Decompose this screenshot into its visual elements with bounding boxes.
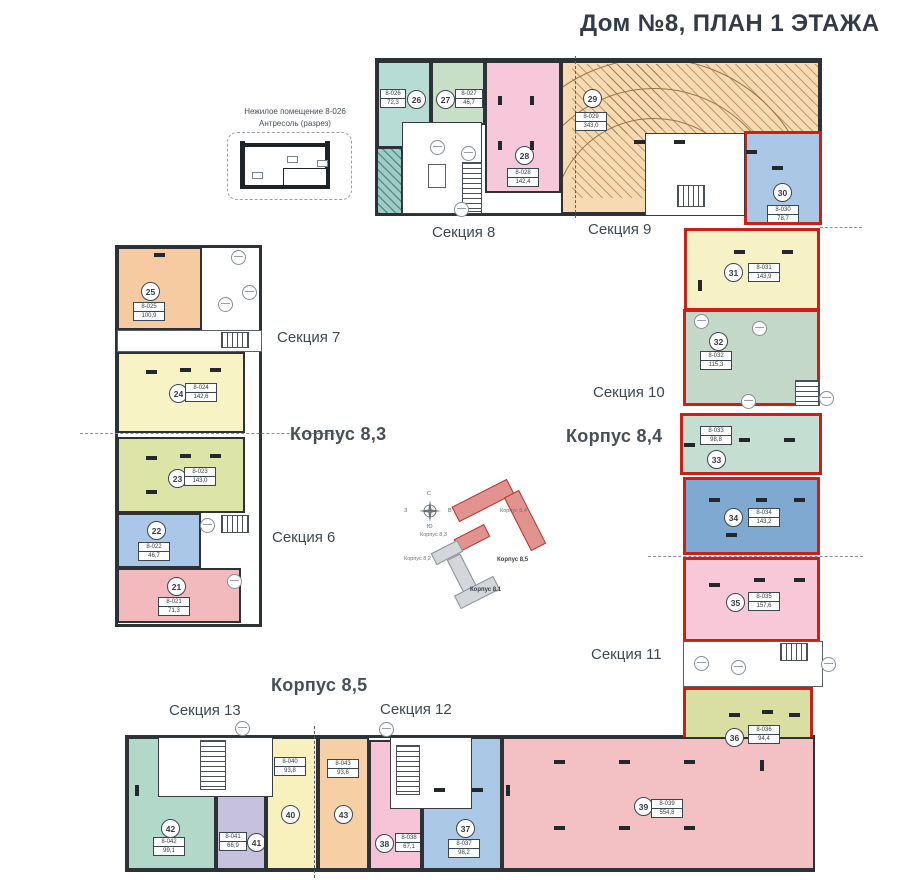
unit-36-area: 94,4 (749, 735, 779, 743)
unit-26-hatched-area (377, 148, 402, 214)
room-tag-icon (694, 314, 709, 329)
mezzanine-note-line2: Антресоль (разрез) (259, 119, 331, 128)
unit-43-code: 8-043 (328, 760, 358, 769)
room-tag-icon (379, 722, 394, 737)
unit-24-info: 8-024 142,6 (185, 383, 217, 402)
unit-27-info: 8-027 46,7 (455, 89, 483, 108)
column-mark (554, 826, 565, 830)
unit-29-info: 8-029 343,0 (575, 112, 607, 131)
unit-30-number: 30 (773, 183, 792, 202)
unit-21-number: 21 (167, 577, 186, 596)
unit-40-area: 93,8 (275, 767, 305, 775)
column-mark (180, 454, 191, 458)
unit-42-info: 8-042 99,1 (153, 837, 185, 856)
section-divider-line (575, 56, 576, 218)
column-mark (709, 583, 720, 587)
column-mark (135, 785, 139, 796)
column-mark (734, 250, 745, 254)
unit-37-area: 98,2 (449, 849, 479, 857)
unit-39-info: 8-039 554,8 (651, 799, 683, 818)
section-8-label: Секция 8 (432, 224, 495, 241)
unit-32-number: 32 (709, 332, 728, 351)
unit-22-code: 8-022 (139, 543, 169, 552)
compass-rose-icon (419, 500, 441, 522)
korpus-84-label: Корпус 8,4 (566, 426, 662, 447)
dimension-tag (317, 160, 328, 167)
unit-32-area: 115,3 (701, 361, 731, 369)
unit-29-code: 8-029 (576, 113, 606, 122)
unit-39-area: 554,8 (652, 809, 682, 817)
column-mark (782, 250, 793, 254)
room-tag-icon (227, 574, 242, 589)
column-mark (789, 713, 800, 717)
unit-38-area: 67,1 (396, 843, 422, 851)
unit-42-number: 42 (161, 819, 180, 838)
unit-26-code: 8-026 (381, 90, 405, 99)
unit-35-info: 8-035 157,6 (748, 592, 780, 611)
unit-40-number: 40 (281, 805, 300, 824)
column-mark (530, 141, 534, 150)
column-mark (498, 141, 502, 150)
mezzanine-column-left (240, 141, 245, 189)
column-mark (210, 368, 221, 372)
mezzanine-beam-bottom (245, 185, 325, 189)
room-tag-icon (461, 146, 476, 161)
column-mark (472, 788, 483, 792)
column-mark (674, 140, 685, 144)
column-mark (684, 760, 695, 764)
unit-31-area: 143,9 (749, 273, 779, 281)
keyplan-korpus-82-label: Корпус 8,2 (404, 556, 431, 562)
column-mark (434, 788, 445, 792)
unit-22-number: 22 (147, 521, 166, 540)
staircase (677, 185, 705, 207)
keyplan-korpus-85-label: Корпус 8,5 (497, 557, 528, 563)
unit-23-info: 8-023 143,0 (184, 467, 216, 486)
unit-21-code: 8-021 (159, 598, 189, 607)
column-mark (709, 498, 720, 502)
staircase (780, 643, 808, 661)
unit-28-code: 8-028 (508, 169, 538, 178)
column-mark (498, 96, 502, 105)
korpus-85-label: Корпус 8,5 (271, 675, 367, 696)
unit-29-number: 29 (583, 89, 602, 108)
floor-plan-canvas: Дом №8, ПЛАН 1 ЭТАЖА Нежилое помещение 8… (0, 0, 916, 880)
unit-38-number: 38 (375, 834, 394, 853)
unit-25[interactable]: 25 8-025 100,9 (117, 247, 202, 330)
unit-21-area: 71,3 (159, 607, 189, 615)
column-mark (794, 498, 805, 502)
column-mark (506, 785, 510, 796)
unit-33-number: 33 (707, 450, 726, 469)
unit-34[interactable]: 34 8-034 143,2 (683, 477, 820, 555)
unit-43-info: 8-043 93,6 (327, 759, 359, 778)
unit-31-code: 8-031 (749, 264, 779, 273)
column-mark (554, 760, 565, 764)
unit-23-code: 8-023 (185, 468, 215, 477)
column-mark (619, 826, 630, 830)
unit-27[interactable]: 27 8-027 46,7 (431, 61, 485, 125)
mezzanine-beam-top (245, 143, 325, 147)
unit-28-area: 142,4 (508, 178, 538, 186)
unit-34-info: 8-034 143,2 (748, 508, 780, 527)
section-7-label: Секция 7 (277, 329, 340, 346)
mezzanine-note: Нежилое помещение 8-026 Антресоль (разре… (230, 106, 360, 130)
keyplan-korpus-81-label: Корпус 8,1 (470, 587, 501, 593)
unit-26-number: 26 (407, 90, 426, 109)
unit-36-number: 36 (725, 728, 744, 747)
unit-33-info: 8-033 98,8 (700, 426, 732, 445)
unit-23-area: 143,0 (185, 477, 215, 485)
unit-28-info: 8-028 142,4 (507, 168, 539, 187)
room-tag-icon (821, 657, 836, 672)
column-mark (210, 454, 221, 458)
column-mark (146, 490, 157, 494)
unit-23[interactable]: 23 8-023 143,0 (117, 437, 245, 513)
unit-43-area: 93,6 (328, 769, 358, 777)
column-mark (794, 578, 805, 582)
section-12-label: Секция 12 (380, 701, 452, 718)
unit-28[interactable]: 28 8-028 142,4 (485, 61, 561, 193)
compass-north-label: С (427, 491, 431, 497)
unit-25-code: 8-025 (134, 303, 164, 312)
page-title: Дом №8, ПЛАН 1 ЭТАЖА (580, 10, 880, 38)
staircase (795, 380, 819, 406)
unit-27-number: 27 (436, 90, 455, 109)
column-mark (754, 578, 765, 582)
unit-43[interactable]: 8-043 93,6 43 (318, 737, 369, 870)
axis-line (648, 556, 863, 557)
unit-35-area: 157,6 (749, 602, 779, 610)
section-6-label: Секция 6 (272, 529, 335, 546)
unit-21[interactable]: 21 8-021 71,3 (117, 568, 241, 623)
unit-33-area: 98,8 (701, 436, 731, 444)
unit-40-info: 8-040 93,8 (274, 757, 306, 776)
unit-38-info: 8-038 67,1 (395, 833, 422, 852)
unit-24[interactable]: 24 8-024 142,6 (117, 352, 245, 433)
column-mark (698, 280, 702, 291)
unit-40[interactable]: 8-040 93,8 40 (266, 737, 318, 870)
column-mark (530, 96, 534, 105)
column-mark (634, 140, 645, 144)
unit-25-info: 8-025 100,9 (133, 302, 165, 321)
unit-26-info: 8-026 72,3 (380, 89, 406, 108)
unit-34-number: 34 (724, 508, 743, 527)
unit-22[interactable]: 22 8-022 46,7 (117, 513, 201, 568)
elevator-shaft (428, 164, 446, 188)
keyplan-korpus-83-label: Корпус 8,3 (420, 532, 447, 538)
column-mark (760, 760, 764, 771)
unit-39[interactable]: 39 8-039 554,8 (502, 737, 815, 870)
unit-31[interactable]: 31 8-031 143,9 (684, 228, 820, 311)
unit-30[interactable]: 30 8-030 78,7 (744, 131, 822, 225)
unit-33[interactable]: 8-033 98,8 33 (680, 413, 822, 475)
unit-27-code: 8-027 (456, 90, 482, 99)
column-mark (154, 253, 165, 257)
unit-31-number: 31 (724, 263, 743, 282)
unit-21-info: 8-021 71,3 (158, 597, 190, 616)
korpus-83-label: Корпус 8,3 (290, 424, 386, 445)
column-mark (739, 438, 750, 442)
unit-33-code: 8-033 (701, 427, 731, 436)
column-mark (756, 498, 767, 502)
unit-34-area: 143,2 (749, 518, 779, 526)
room-tag-icon (218, 297, 233, 312)
compass-west-label: З (404, 508, 407, 514)
unit-31-info: 8-031 143,9 (748, 263, 780, 282)
dimension-tag (252, 172, 263, 179)
unit-22-area: 46,7 (139, 552, 169, 560)
unit-35-code: 8-035 (749, 593, 779, 602)
staircase (221, 515, 249, 533)
keyplan-korpus-85-shape (504, 490, 546, 551)
column-mark (762, 710, 773, 714)
room-tag-icon (741, 394, 756, 409)
room-tag-icon (454, 202, 469, 217)
unit-41-code: 8-041 (220, 833, 246, 842)
room-tag-icon (694, 656, 709, 671)
room-tag-icon (231, 250, 246, 265)
unit-38-code: 8-038 (396, 834, 422, 843)
unit-26-area: 72,3 (381, 99, 405, 107)
unit-30-info: 8-030 78,7 (767, 205, 799, 224)
room-tag-icon (731, 660, 746, 675)
staircase (221, 332, 249, 348)
unit-37-info: 8-037 98,2 (448, 839, 480, 858)
section-9-label: Секция 9 (588, 221, 651, 238)
unit-43-number: 43 (334, 805, 353, 824)
unit-36-code: 8-036 (749, 726, 779, 735)
column-mark (180, 368, 191, 372)
column-mark (729, 713, 740, 717)
unit-41-area: 66,9 (220, 842, 246, 850)
room-tag-icon (430, 140, 445, 155)
unit-35-number: 35 (726, 593, 745, 612)
room-tag-icon (752, 321, 767, 336)
unit-24-area: 142,6 (186, 393, 216, 401)
unit-25-area: 100,9 (134, 312, 164, 320)
dimension-tag (287, 156, 298, 163)
unit-22-info: 8-022 46,7 (138, 542, 170, 561)
column-mark (146, 456, 157, 460)
unit-32-info: 8-032 115,3 (700, 351, 732, 370)
unit-40-code: 8-040 (275, 758, 305, 767)
unit-24-code: 8-024 (186, 384, 216, 393)
column-mark (726, 533, 737, 537)
unit-42-area: 99,1 (154, 847, 184, 855)
section-10-label: Секция 10 (593, 384, 665, 401)
unit-41-number: 41 (247, 833, 266, 852)
room-tag-icon (235, 721, 250, 736)
unit-41-info: 8-041 66,9 (219, 832, 247, 851)
column-mark (772, 166, 783, 170)
column-mark (746, 150, 757, 154)
unit-30-code: 8-030 (768, 206, 798, 215)
unit-37-code: 8-037 (449, 840, 479, 849)
mezzanine-slab (283, 168, 327, 186)
unit-34-code: 8-034 (749, 509, 779, 518)
compass-east-label: В (448, 508, 452, 514)
unit-30-area: 78,7 (768, 215, 798, 223)
staircase (396, 745, 420, 795)
room-tag-icon (242, 285, 257, 300)
mezzanine-note-line1: Нежилое помещение 8-026 (244, 107, 346, 116)
unit-27-area: 46,7 (456, 99, 482, 107)
column-mark (146, 370, 157, 374)
compass-south-label: Ю (427, 524, 433, 530)
column-mark (684, 443, 695, 447)
unit-29-area: 343,0 (576, 122, 606, 130)
keyplan-korpus-84-label: Корпус 8,4 (500, 508, 527, 514)
column-mark (684, 826, 695, 830)
section-divider-line (314, 726, 315, 878)
unit-36-info: 8-036 94,4 (748, 725, 780, 744)
room-tag-icon (200, 518, 215, 533)
unit-42-code: 8-042 (154, 838, 184, 847)
section-11-label: Секция 11 (591, 646, 662, 663)
unit-35[interactable]: 35 8-035 157,6 (683, 557, 820, 642)
column-mark (784, 438, 795, 442)
room-tag-icon (819, 391, 834, 406)
unit-32-code: 8-032 (701, 352, 731, 361)
column-mark (619, 760, 630, 764)
unit-37-number: 37 (456, 819, 475, 838)
unit-25-number: 25 (141, 282, 160, 301)
staircase (200, 740, 226, 790)
axis-line (820, 227, 862, 228)
section-13-label: Секция 13 (169, 702, 241, 719)
unit-39-code: 8-039 (652, 800, 682, 809)
